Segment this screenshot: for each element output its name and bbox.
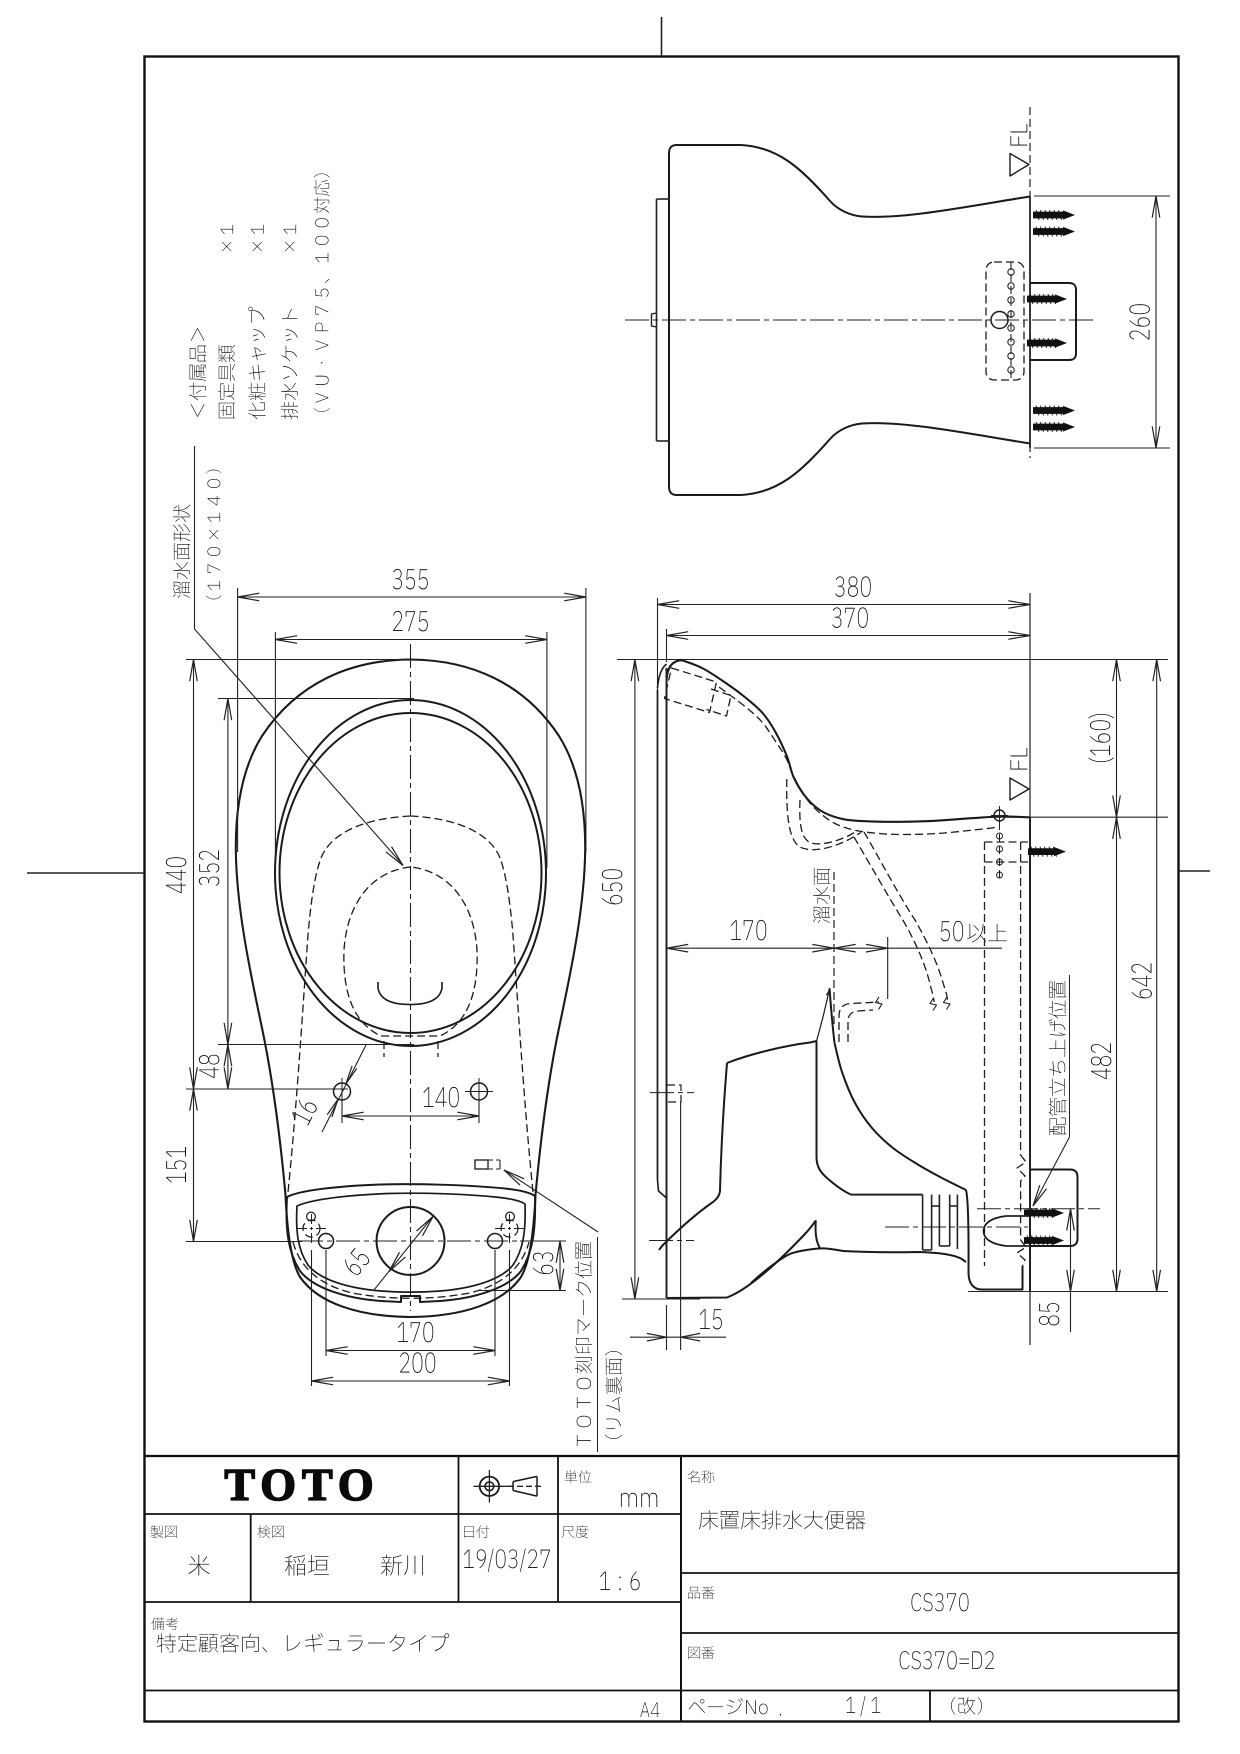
svg-text:TOTO: TOTO xyxy=(224,1459,379,1510)
